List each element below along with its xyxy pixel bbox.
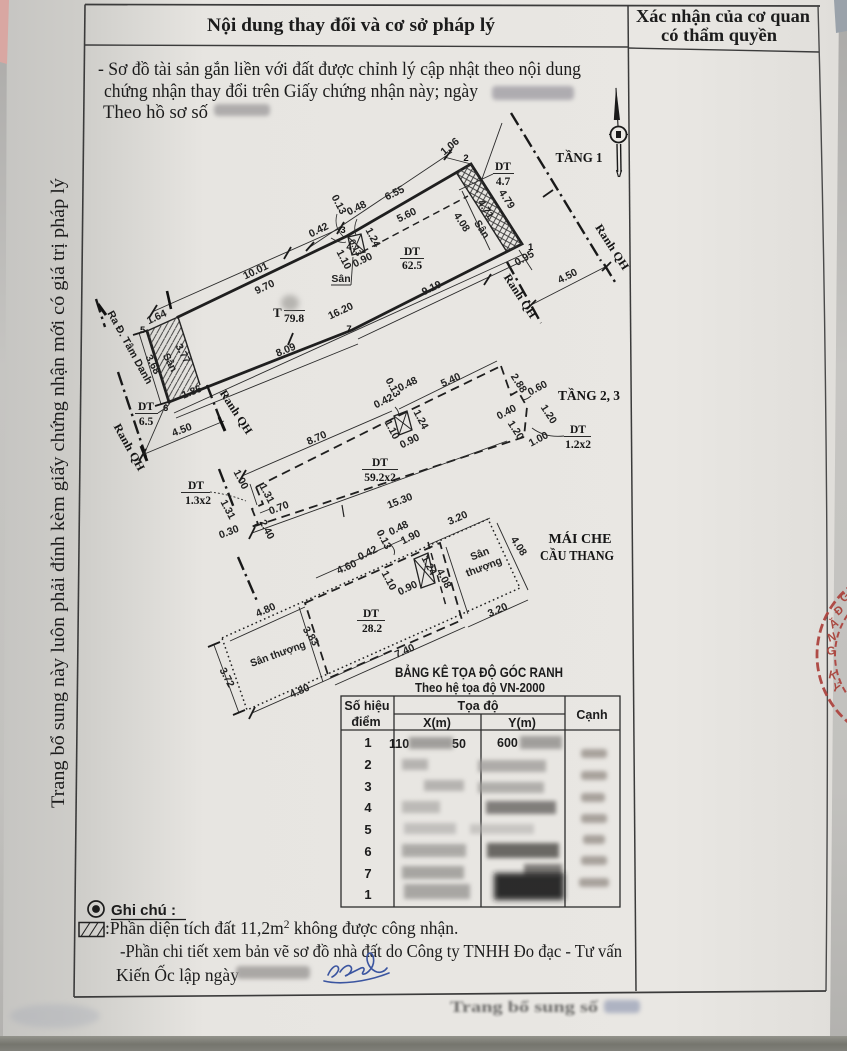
svg-text:Theo hệ tọa độ VN-2000: Theo hệ tọa độ VN-2000 bbox=[415, 681, 545, 695]
svg-text:DT: DT bbox=[363, 608, 379, 620]
svg-text:6: 6 bbox=[364, 844, 371, 859]
svg-text:1.2x2: 1.2x2 bbox=[565, 439, 591, 451]
svg-text:4: 4 bbox=[346, 242, 352, 253]
svg-text:Ghi chú :: Ghi chú : bbox=[111, 902, 176, 919]
svg-text:Nội dung thay đổi và cơ sở phá: Nội dung thay đổi và cơ sở pháp lý bbox=[207, 15, 496, 36]
svg-text:Sân: Sân bbox=[331, 273, 350, 285]
svg-text:1: 1 bbox=[528, 242, 534, 253]
svg-text:-Phần chi tiết xem bản vẽ sơ đ: -Phần chi tiết xem bản vẽ sơ đồ nhà đất … bbox=[120, 941, 622, 961]
svg-text:Theo hồ sơ số: Theo hồ sơ số bbox=[103, 103, 208, 123]
svg-text:MÁI CHE: MÁI CHE bbox=[549, 531, 612, 546]
svg-text:DT: DT bbox=[372, 457, 388, 469]
svg-text:79.8: 79.8 bbox=[284, 313, 304, 325]
svg-text:X(m): X(m) bbox=[423, 716, 451, 730]
svg-text:DT: DT bbox=[495, 161, 511, 173]
svg-text:110: 110 bbox=[389, 737, 409, 751]
svg-text::Phần diện tích đất 11,2m2 khô: :Phần diện tích đất 11,2m2 không được cô… bbox=[105, 918, 458, 938]
svg-text:4: 4 bbox=[364, 800, 372, 815]
svg-text:3: 3 bbox=[340, 225, 345, 236]
svg-text:điểm: điểm bbox=[351, 715, 380, 729]
svg-text:Tọa độ: Tọa độ bbox=[458, 699, 499, 713]
svg-text:1: 1 bbox=[364, 735, 371, 750]
svg-text:DT: DT bbox=[404, 246, 420, 258]
svg-text:7: 7 bbox=[346, 324, 351, 335]
svg-text:DT: DT bbox=[570, 424, 586, 436]
svg-text:Cạnh: Cạnh bbox=[576, 708, 607, 722]
svg-text:2: 2 bbox=[364, 757, 371, 772]
svg-text:3: 3 bbox=[364, 779, 371, 794]
svg-text:28.2: 28.2 bbox=[362, 623, 382, 635]
svg-text:DT: DT bbox=[138, 401, 154, 413]
svg-text:2: 2 bbox=[463, 153, 468, 164]
svg-text:6.5: 6.5 bbox=[139, 416, 154, 428]
svg-text:có thẩm quyền: có thẩm quyền bbox=[661, 25, 777, 45]
svg-text:G: G bbox=[826, 645, 836, 658]
svg-text:Trang bổ sung số: Trang bổ sung số bbox=[450, 999, 599, 1016]
svg-text:Trang bổ sung này luôn phải đí: Trang bổ sung này luôn phải đính kèm giấ… bbox=[49, 177, 69, 808]
svg-text:Xác nhận của cơ quan: Xác nhận của cơ quan bbox=[636, 6, 810, 26]
svg-text:TẦNG 1: TẦNG 1 bbox=[556, 150, 603, 165]
svg-text:5: 5 bbox=[364, 822, 371, 837]
svg-text:4.7: 4.7 bbox=[496, 176, 511, 188]
svg-text:chứng nhận thay đổi trên Giấy: chứng nhận thay đổi trên Giấy chứng nhận… bbox=[104, 82, 479, 102]
svg-text:Y(m): Y(m) bbox=[508, 716, 536, 730]
svg-text:BẢNG KÊ TỌA ĐỘ GÓC RANH: BẢNG KÊ TỌA ĐỘ GÓC RANH bbox=[395, 663, 563, 680]
svg-text:DT: DT bbox=[188, 480, 204, 492]
svg-text:T: T bbox=[273, 305, 282, 320]
svg-text:Số hiệu: Số hiệu bbox=[344, 699, 389, 713]
svg-text:600: 600 bbox=[497, 736, 518, 750]
svg-text:CẦU THANG: CẦU THANG bbox=[540, 548, 614, 563]
svg-text:1.3x2: 1.3x2 bbox=[185, 495, 211, 507]
svg-text:Kiến Ốc lập ngày: Kiến Ốc lập ngày bbox=[116, 965, 239, 985]
svg-text:59.2x2: 59.2x2 bbox=[364, 472, 396, 484]
svg-text:TẦNG 2, 3: TẦNG 2, 3 bbox=[558, 388, 620, 403]
svg-text:7: 7 bbox=[364, 866, 371, 881]
svg-text:- Sơ đồ tài sản gắn liền với đ: - Sơ đồ tài sản gắn liền với đất được ch… bbox=[98, 60, 581, 80]
svg-text:50: 50 bbox=[452, 737, 466, 751]
svg-text:62.5: 62.5 bbox=[402, 260, 422, 272]
svg-text:1: 1 bbox=[364, 887, 371, 902]
